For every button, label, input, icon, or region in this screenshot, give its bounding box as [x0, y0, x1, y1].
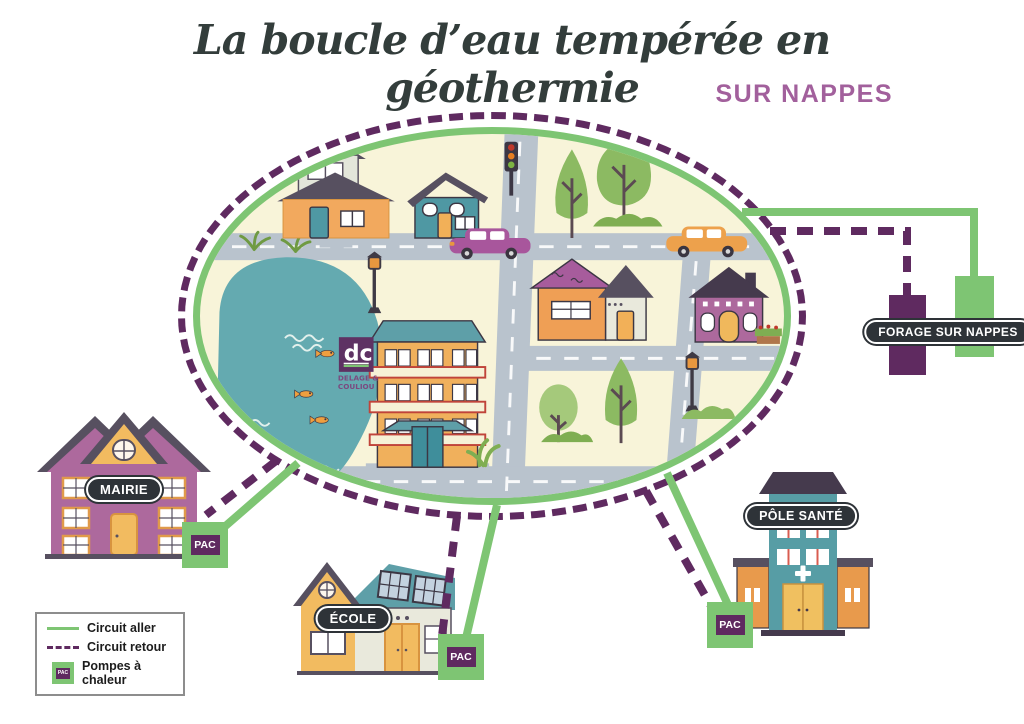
mairie-label: MAIRIE	[86, 477, 162, 502]
legend-item-circuit-retour: Circuit retour	[47, 640, 173, 654]
tree	[555, 149, 588, 238]
delage-couliou-logo: dc DELAGE & COULIOU	[338, 337, 379, 391]
legend-item-circuit-aller: Circuit aller	[47, 621, 173, 635]
tree	[593, 140, 662, 227]
poster: La boucle d’eau tempérée en géothermie S…	[0, 0, 1024, 724]
legend: Circuit aller Circuit retour PAC Pompes …	[35, 612, 185, 696]
pole-sante-label: PÔLE SANTÉ	[745, 504, 857, 528]
logo-name-line2: COULIOU	[338, 382, 375, 391]
pole-sante-building	[733, 466, 873, 638]
legend-label: Circuit retour	[87, 640, 166, 654]
legend-label: Pompes à chaleur	[82, 659, 173, 687]
legend-label: Circuit aller	[87, 621, 156, 635]
page-subtitle: SUR NAPPES	[715, 80, 893, 109]
pebble	[342, 480, 355, 487]
circuit-aller-ecole-line	[466, 505, 497, 638]
circuit-retour-ring: dc DELAGE & COULIOU	[178, 112, 806, 520]
pac-swatch-icon: PAC	[52, 662, 74, 684]
forage-label: FORAGE SUR NAPPES	[864, 320, 1024, 344]
village-map-illustration: dc DELAGE & COULIOU	[200, 134, 784, 498]
logo-monogram: dc	[344, 340, 373, 366]
circuit-retour-swatch	[47, 646, 79, 649]
house-two-story	[277, 136, 394, 248]
legend-item-pompes: PAC Pompes à chaleur	[47, 659, 173, 687]
pac-node-ecole: PAC	[438, 634, 484, 680]
circuit-retour-sante-line	[646, 491, 711, 606]
apartment-building	[366, 321, 499, 475]
logo-name-line1: DELAGE &	[338, 374, 379, 383]
borehole-aller	[955, 276, 994, 357]
pac-node-sante: PAC	[707, 602, 753, 648]
circuit-aller-swatch	[47, 627, 79, 630]
house-orange-annex	[531, 259, 653, 340]
circuit-aller-ring: dc DELAGE & COULIOU	[193, 127, 791, 505]
pac-node-sante-label: PAC	[716, 615, 745, 635]
tree	[605, 358, 637, 443]
ecole-label: ÉCOLE	[316, 606, 391, 631]
pac-swatch-text: PAC	[56, 668, 70, 679]
pac-node-mairie: PAC	[182, 522, 228, 568]
pac-node-mairie-label: PAC	[191, 535, 220, 555]
pac-node-ecole-label: PAC	[447, 647, 476, 667]
tree-round	[539, 384, 593, 442]
